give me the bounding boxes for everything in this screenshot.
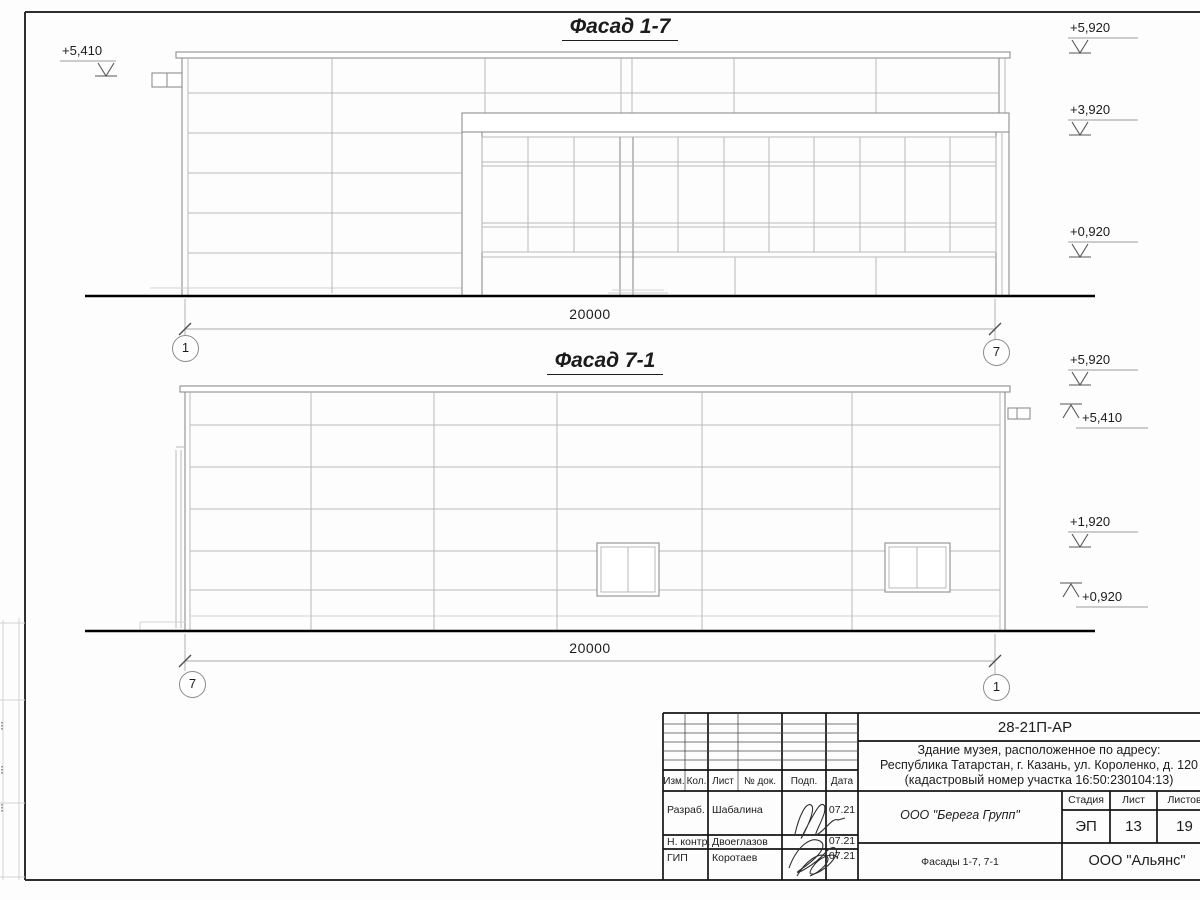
- elevation-label: +5,410: [1082, 410, 1122, 425]
- facade-1-7-title: Фасад 1-7: [495, 15, 745, 39]
- axis-bubble: 1: [983, 674, 1010, 701]
- facade-7-1-drawing: [85, 386, 1095, 631]
- name-gip: Коротаев: [712, 852, 757, 864]
- axis-bubble: 1: [172, 335, 199, 362]
- drawing-sheet: Фасад 1-7 Фасад 7-1 +5,410 +5,920 +3,920…: [0, 0, 1200, 900]
- name-control: Двоеглазов: [712, 836, 768, 848]
- window-2: [885, 543, 950, 592]
- sheet-value: 13: [1110, 818, 1157, 835]
- elevation-label: +5,410: [62, 43, 102, 58]
- facade-1-7-drawing: [85, 52, 1095, 296]
- elevation-label: +3,920: [1070, 102, 1110, 117]
- col-header-date: Дата: [826, 776, 858, 787]
- elevation-label: +0,920: [1082, 589, 1122, 604]
- elevation-label: +0,920: [1070, 224, 1110, 239]
- object-address-line1: Здание музея, расположенное по адресу:: [858, 743, 1200, 758]
- doc-code: 28-21П-АР: [858, 719, 1200, 736]
- col-header-list: Лист: [708, 776, 738, 787]
- axis-bubble: 7: [179, 671, 206, 698]
- name-developed: Шабалина: [712, 804, 763, 816]
- col-header-doc: № док.: [738, 776, 782, 787]
- stage-label: Стадия: [1062, 794, 1110, 806]
- contractor-company: ООО "Альянс": [1062, 853, 1200, 869]
- object-address-line3: (кадастровый номер участка 16:50:230104:…: [858, 773, 1200, 788]
- stage-value: ЭП: [1062, 818, 1110, 835]
- elevation-label: +5,920: [1070, 352, 1110, 367]
- object-address-line2: Республика Татарстан, г. Казань, ул. Кор…: [858, 758, 1200, 773]
- sheets-label: Листов: [1157, 794, 1200, 806]
- designer-company: ООО "Берега Групп": [858, 808, 1062, 823]
- object-address: Здание музея, расположенное по адресу: Р…: [858, 743, 1200, 788]
- role-gip: ГИП: [667, 852, 688, 864]
- date-gip: 07.21: [826, 850, 858, 862]
- col-header-sign: Подп.: [782, 776, 826, 787]
- drawing-title: Фасады 1-7, 7-1: [858, 856, 1062, 868]
- col-header-izm: Изм.: [663, 776, 685, 787]
- dimension-label: 20000: [540, 640, 640, 656]
- sheets-value: 19: [1157, 818, 1200, 835]
- elevation-label: +1,920: [1070, 514, 1110, 529]
- role-developed: Разраб.: [667, 804, 705, 816]
- col-header-kol: Кол.: [685, 776, 708, 787]
- elevation-label: +5,920: [1070, 20, 1110, 35]
- date-developed: 07.21: [826, 804, 858, 816]
- facade-7-1-title: Фасад 7-1: [480, 349, 730, 373]
- axis-bubble: 7: [983, 339, 1010, 366]
- window-1: [597, 543, 659, 596]
- sheet-label: Лист: [1110, 794, 1157, 806]
- left-margin-strip: [0, 618, 25, 880]
- date-control: 07.21: [826, 835, 858, 847]
- role-control: Н. контр.: [667, 836, 710, 848]
- dimension-label: 20000: [540, 306, 640, 322]
